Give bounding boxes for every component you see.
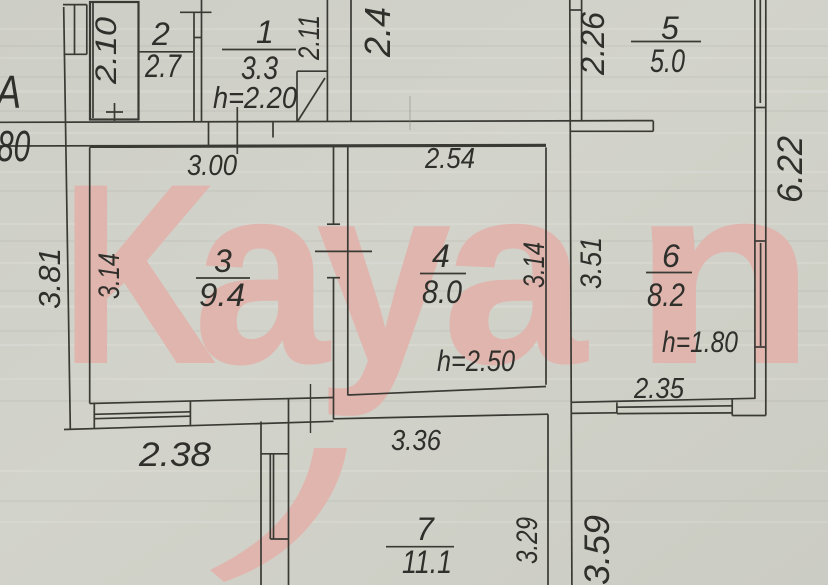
svg-text:3.59: 3.59 bbox=[578, 515, 617, 585]
svg-text:3.36: 3.36 bbox=[391, 425, 442, 457]
svg-text:8.2: 8.2 bbox=[647, 277, 685, 313]
svg-text:5: 5 bbox=[661, 10, 679, 46]
svg-text:h=2.20: h=2.20 bbox=[213, 80, 297, 115]
svg-text:3: 3 bbox=[214, 243, 232, 279]
svg-text:80: 80 bbox=[0, 121, 30, 170]
svg-text:2.38: 2.38 bbox=[138, 436, 211, 474]
svg-text:3.14: 3.14 bbox=[518, 242, 551, 288]
svg-text:6.22: 6.22 bbox=[771, 136, 810, 203]
svg-text:3.29: 3.29 bbox=[511, 517, 544, 564]
svg-text:1: 1 bbox=[256, 14, 274, 50]
svg-text:A: A bbox=[0, 66, 21, 117]
svg-text:h=1.80: h=1.80 bbox=[662, 326, 738, 359]
svg-text:2.54: 2.54 bbox=[424, 143, 475, 175]
svg-text:2.7: 2.7 bbox=[144, 48, 182, 84]
svg-text:2.26: 2.26 bbox=[574, 11, 611, 76]
svg-text:2.4: 2.4 bbox=[357, 7, 398, 58]
svg-text:7: 7 bbox=[416, 511, 435, 547]
svg-text:8.0: 8.0 bbox=[422, 274, 462, 310]
svg-text:9.4: 9.4 bbox=[199, 277, 245, 313]
svg-text:11.1: 11.1 bbox=[402, 544, 452, 580]
svg-text:2.35: 2.35 bbox=[633, 373, 685, 405]
svg-text:2.10: 2.10 bbox=[90, 17, 123, 86]
svg-text:6: 6 bbox=[662, 238, 680, 274]
svg-text:3.14: 3.14 bbox=[93, 253, 126, 299]
svg-text:4: 4 bbox=[432, 238, 450, 274]
svg-text:3.51: 3.51 bbox=[575, 237, 608, 289]
svg-text:2.11: 2.11 bbox=[293, 15, 326, 61]
svg-text:2: 2 bbox=[151, 16, 170, 52]
svg-text:3.00: 3.00 bbox=[187, 150, 237, 182]
svg-text:3.81: 3.81 bbox=[32, 248, 67, 309]
svg-text:5.0: 5.0 bbox=[650, 43, 685, 79]
svg-text:h=2.50: h=2.50 bbox=[437, 345, 515, 378]
